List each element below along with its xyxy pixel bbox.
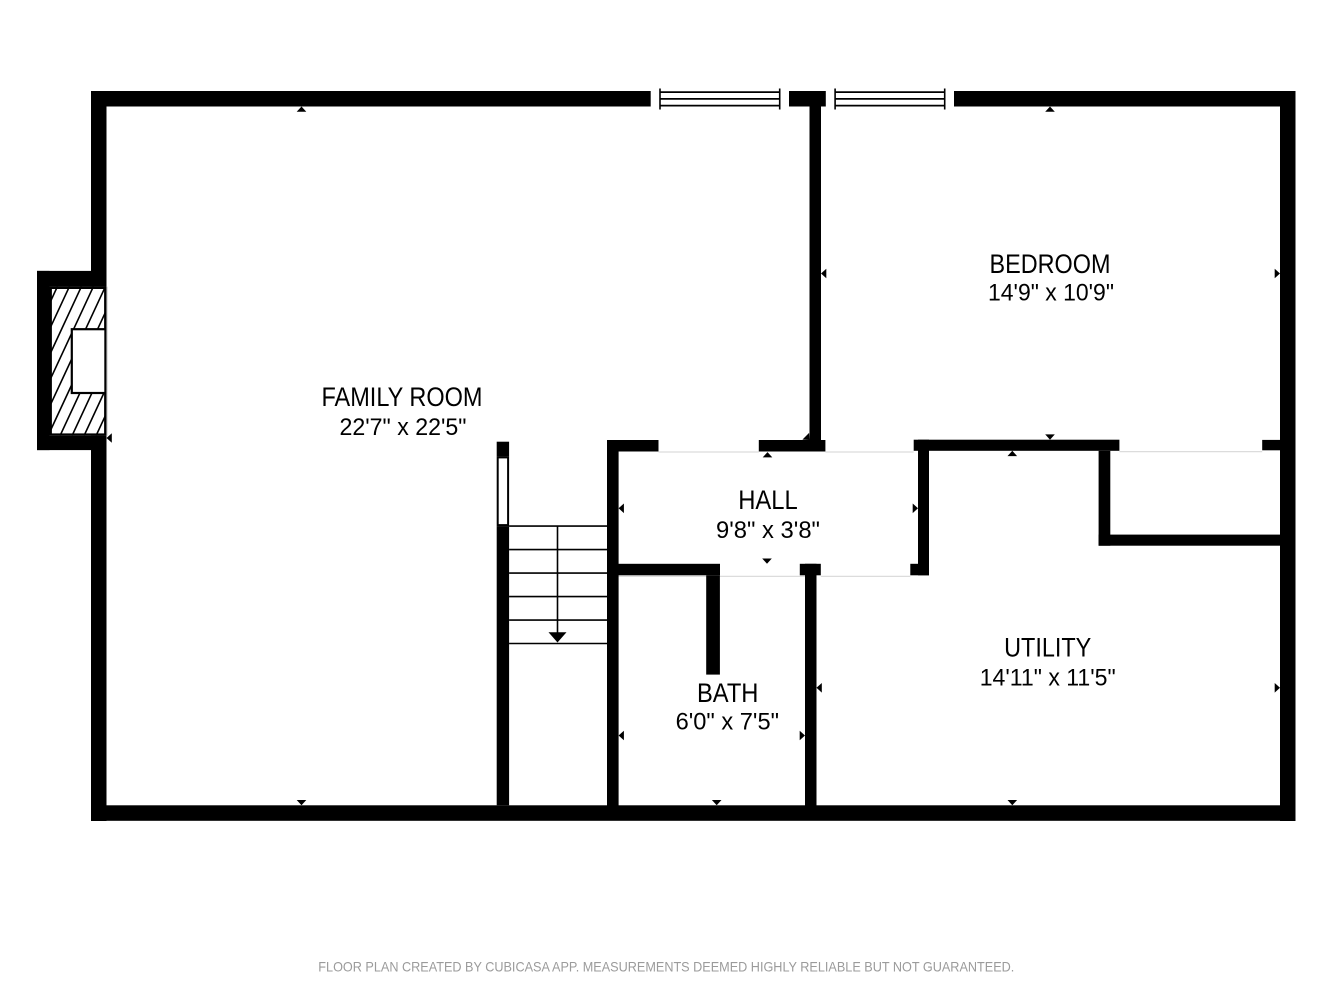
svg-text:9'8" x 3'8": 9'8" x 3'8"	[716, 517, 820, 544]
svg-text:14'11" x 11'5": 14'11" x 11'5"	[980, 665, 1116, 692]
svg-text:6'0" x 7'5": 6'0" x 7'5"	[676, 709, 779, 736]
svg-text:14'9" x 10'9": 14'9" x 10'9"	[988, 280, 1114, 307]
svg-text:22'7" x 22'5": 22'7" x 22'5"	[340, 414, 467, 441]
svg-text:BATH: BATH	[697, 678, 759, 708]
svg-text:UTILITY: UTILITY	[1004, 633, 1091, 663]
svg-text:HALL: HALL	[738, 485, 798, 515]
svg-text:BEDROOM: BEDROOM	[990, 249, 1111, 279]
svg-text:FLOOR PLAN CREATED BY CUBICASA: FLOOR PLAN CREATED BY CUBICASA APP. MEAS…	[318, 959, 1014, 974]
svg-text:FAMILY ROOM: FAMILY ROOM	[322, 382, 483, 412]
